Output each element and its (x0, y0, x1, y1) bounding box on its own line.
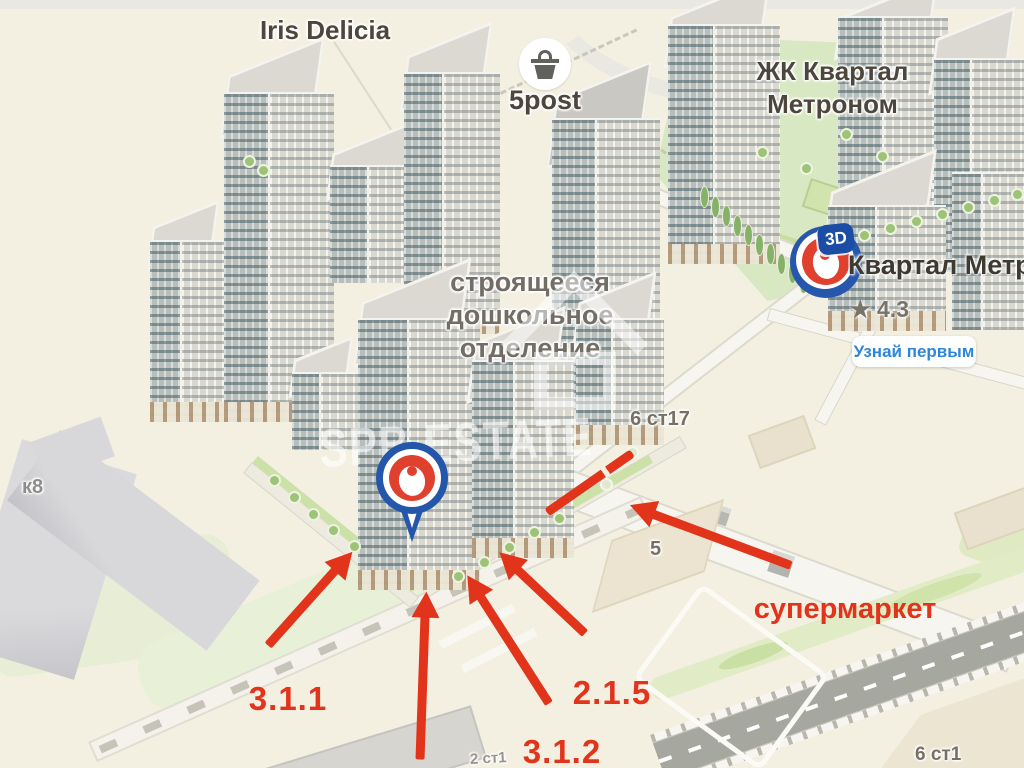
basket-icon (538, 50, 552, 59)
tree-icon (988, 194, 1001, 207)
poplar-tree-icon (733, 215, 742, 237)
poi-name[interactable]: Квартал Метроном (848, 250, 1024, 281)
tree-icon (840, 128, 853, 141)
place-label-zhk[interactable]: ЖК Квартал Метроном (730, 55, 935, 121)
place-label-iris-delicia[interactable]: Iris Delicia (230, 14, 420, 47)
basket-icon (531, 59, 559, 63)
tree-icon (756, 146, 769, 159)
poplar-tree-icon (722, 205, 731, 227)
tree-icon (800, 162, 813, 175)
annotation-label-supermarket: супермаркет (745, 593, 945, 626)
building-low (748, 415, 817, 469)
5post-icon[interactable] (519, 38, 571, 90)
tree-icon (876, 150, 889, 163)
building-facade-shaded (668, 24, 713, 264)
tree-icon (327, 524, 340, 537)
watermark-text: SPB ESTATE (318, 406, 594, 480)
cta-button[interactable]: Узнай первым (852, 336, 976, 367)
building-facade-shaded (224, 92, 268, 422)
annotation-label-311: 3.1.1 (240, 680, 336, 718)
basket-icon (533, 65, 557, 79)
zhk-line1: ЖК Квартал (730, 55, 935, 88)
building-facade-shaded (292, 372, 319, 450)
annotation-arrow (514, 566, 589, 637)
place-label-5post[interactable]: 5post (490, 84, 600, 117)
address-label-6st17: 6 ст17 (615, 408, 705, 431)
poplar-tree-icon (766, 243, 775, 265)
address-label-5: 5 (650, 538, 661, 561)
tree-icon (962, 201, 975, 214)
tree-icon (600, 478, 613, 491)
poplar-tree-icon (744, 224, 753, 246)
address-label-k8: к8 (22, 476, 43, 499)
zhk-line2: Метроном (730, 88, 935, 121)
tree-icon (553, 512, 566, 525)
brand-pin-icon[interactable] (372, 440, 452, 550)
poi-rating: ★ 4.3 (850, 296, 909, 323)
address-label-2st1: 2 ст1 (470, 749, 507, 768)
tree-icon (288, 491, 301, 504)
constr-line1: строящееся (380, 266, 680, 299)
annotation-label-312: 3.1.2 (514, 733, 610, 768)
poplar-tree-icon (777, 253, 786, 275)
poplar-tree-icon (755, 234, 764, 256)
poplar-tree-icon (711, 196, 720, 218)
building-tower (150, 240, 226, 422)
building-facade-lit (180, 240, 226, 422)
tree-icon (268, 474, 281, 487)
tree-icon (528, 526, 541, 539)
building-facade-shaded (150, 240, 180, 422)
tree-icon (884, 222, 897, 235)
tree-icon (243, 155, 256, 168)
tree-icon (936, 208, 949, 221)
building-arcade (150, 402, 226, 422)
pin-red-dot (407, 466, 417, 476)
rating-value: 4.3 (877, 296, 909, 322)
tree-icon (910, 215, 923, 228)
poplar-tree-icon (700, 186, 709, 208)
star-icon: ★ (850, 296, 871, 322)
house-watermark-icon (534, 352, 616, 410)
map-canvas: Iris Delicia 5post ЖК Квартал Метроном с… (0, 0, 1024, 768)
tree-icon (1011, 188, 1024, 201)
address-label-6st1: 6 ст1 (915, 744, 961, 766)
building-facade-shaded (330, 165, 367, 283)
tree-icon (257, 164, 270, 177)
tree-icon (307, 508, 320, 521)
annotation-label-215: 2.1.5 (564, 674, 660, 712)
